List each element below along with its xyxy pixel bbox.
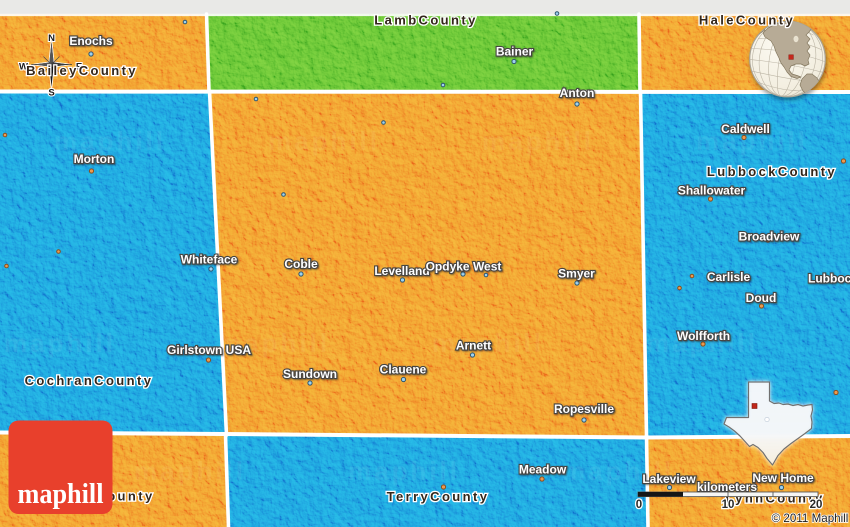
svg-text:10: 10 (722, 499, 735, 511)
svg-text:maphill: maphill (4, 328, 116, 358)
svg-text:Shallowater: Shallowater (678, 184, 746, 198)
svg-text:Broadview: Broadview (739, 230, 800, 244)
svg-text:Lubbock: Lubbock (808, 272, 850, 286)
svg-text:Carlisle: Carlisle (707, 270, 751, 284)
svg-text:LubbockCounty: LubbockCounty (707, 164, 837, 179)
svg-text:Bainer: Bainer (496, 45, 534, 59)
svg-text:Wolfforth: Wolfforth (677, 329, 730, 343)
svg-text:S: S (48, 88, 54, 99)
svg-text:maphill: maphill (482, 126, 594, 156)
svg-text:CochranCounty: CochranCounty (25, 373, 154, 388)
svg-text:Opdyke West: Opdyke West (426, 260, 502, 274)
svg-text:Coble: Coble (284, 257, 318, 271)
svg-text:Anton: Anton (560, 86, 595, 100)
svg-text:© 2011 Maphill: © 2011 Maphill (772, 512, 849, 525)
svg-text:Lakeview: Lakeview (642, 472, 696, 486)
svg-text:Caldwell: Caldwell (721, 122, 770, 136)
svg-text:BaileyCounty: BaileyCounty (26, 63, 138, 78)
svg-text:kilometers: kilometers (697, 480, 757, 494)
svg-text:20: 20 (810, 499, 823, 511)
svg-text:Girlstown USA: Girlstown USA (167, 343, 251, 357)
svg-text:maphill: maphill (18, 478, 104, 510)
svg-text:New Home: New Home (752, 471, 814, 485)
svg-text:Doud: Doud (746, 291, 777, 305)
svg-text:Ropesville: Ropesville (554, 402, 614, 416)
svg-text:Clauene: Clauene (380, 363, 427, 377)
svg-text:Smyer: Smyer (558, 267, 595, 281)
svg-text:maphill: maphill (348, 456, 460, 486)
svg-text:0: 0 (636, 499, 642, 511)
svg-text:Sundown: Sundown (283, 367, 337, 381)
svg-text:LambCounty: LambCounty (374, 13, 477, 28)
svg-text:Whiteface: Whiteface (181, 253, 238, 267)
svg-text:Enochs: Enochs (69, 34, 113, 48)
svg-text:Arnett: Arnett (456, 339, 491, 353)
svg-text:N: N (48, 33, 55, 44)
svg-text:maphill: maphill (134, 456, 246, 486)
svg-text:Morton: Morton (74, 152, 115, 166)
svg-text:TerryCounty: TerryCounty (387, 489, 490, 504)
svg-text:Levelland: Levelland (374, 264, 429, 278)
svg-text:maphill: maphill (268, 126, 380, 156)
svg-text:HaleCounty: HaleCounty (699, 13, 795, 28)
svg-text:Meadow: Meadow (519, 463, 567, 477)
